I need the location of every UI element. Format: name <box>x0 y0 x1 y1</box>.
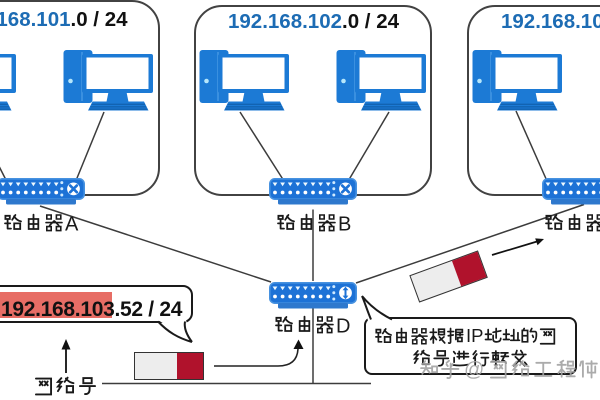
svg-text:@: @ <box>464 359 484 381</box>
svg-text:IP: IP <box>466 326 483 346</box>
